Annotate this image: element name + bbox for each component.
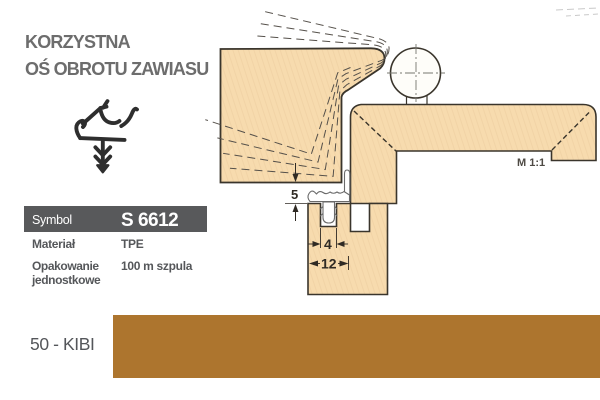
svg-text:4: 4: [324, 236, 332, 252]
svg-text:M 1:1: M 1:1: [517, 157, 545, 169]
svg-text:5: 5: [291, 187, 298, 202]
svg-text:12: 12: [321, 256, 337, 272]
